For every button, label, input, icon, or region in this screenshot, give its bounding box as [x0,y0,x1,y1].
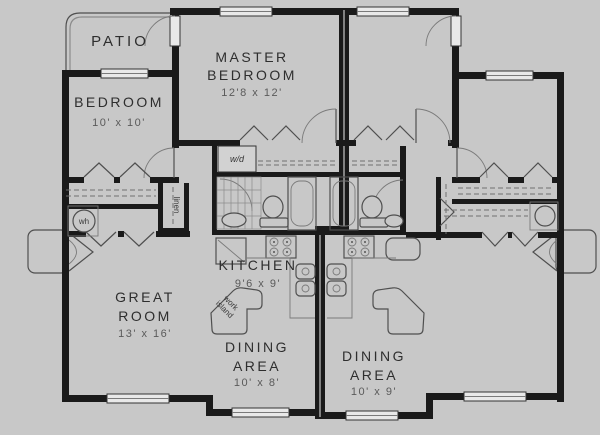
great-room-dims: 13' x 16' [118,328,172,340]
master-bedroom-label-line2: BEDROOM [207,67,297,83]
window [101,69,148,78]
window [346,411,398,420]
great-room-label-line2: ROOM [118,308,172,324]
washer-dryer: w/d [218,146,256,172]
kitchen-dims: 9'6 x 9' [235,278,281,290]
sink [385,215,403,227]
floor-plan-page: w/d wh linen [0,0,600,435]
dining-area-right-label-line1: DINING [342,348,406,364]
dining-area-left-dims: 10' x 8' [234,377,280,389]
window [357,7,409,16]
great-room-label-line1: GREAT [115,289,175,305]
dining-area-right-label-line2: AREA [350,367,398,383]
floor-plan-drawing: w/d wh linen [0,0,600,435]
dining-area-right-dims: 10' x 9' [351,386,397,398]
bedroom-label: BEDROOM [74,94,164,110]
water-heater-label: wh [78,217,89,226]
dining-area-left-label-line1: DINING [225,339,289,355]
linen-closet-label: linen [172,197,181,214]
window [107,394,169,403]
kitchen-label: KITCHEN [219,257,298,273]
bedroom-dims: 10' x 10' [92,117,146,129]
dining-area-left-label-line2: AREA [233,358,281,374]
master-bedroom-dims: 12'8 x 12' [221,87,282,99]
window [486,71,533,80]
window [464,392,526,401]
washer-dryer-label: w/d [230,154,245,164]
sink [222,213,246,227]
patio-label: PATIO [91,33,149,50]
window [232,408,289,417]
window [220,7,272,16]
master-bedroom-label-line1: MASTER [215,49,288,65]
